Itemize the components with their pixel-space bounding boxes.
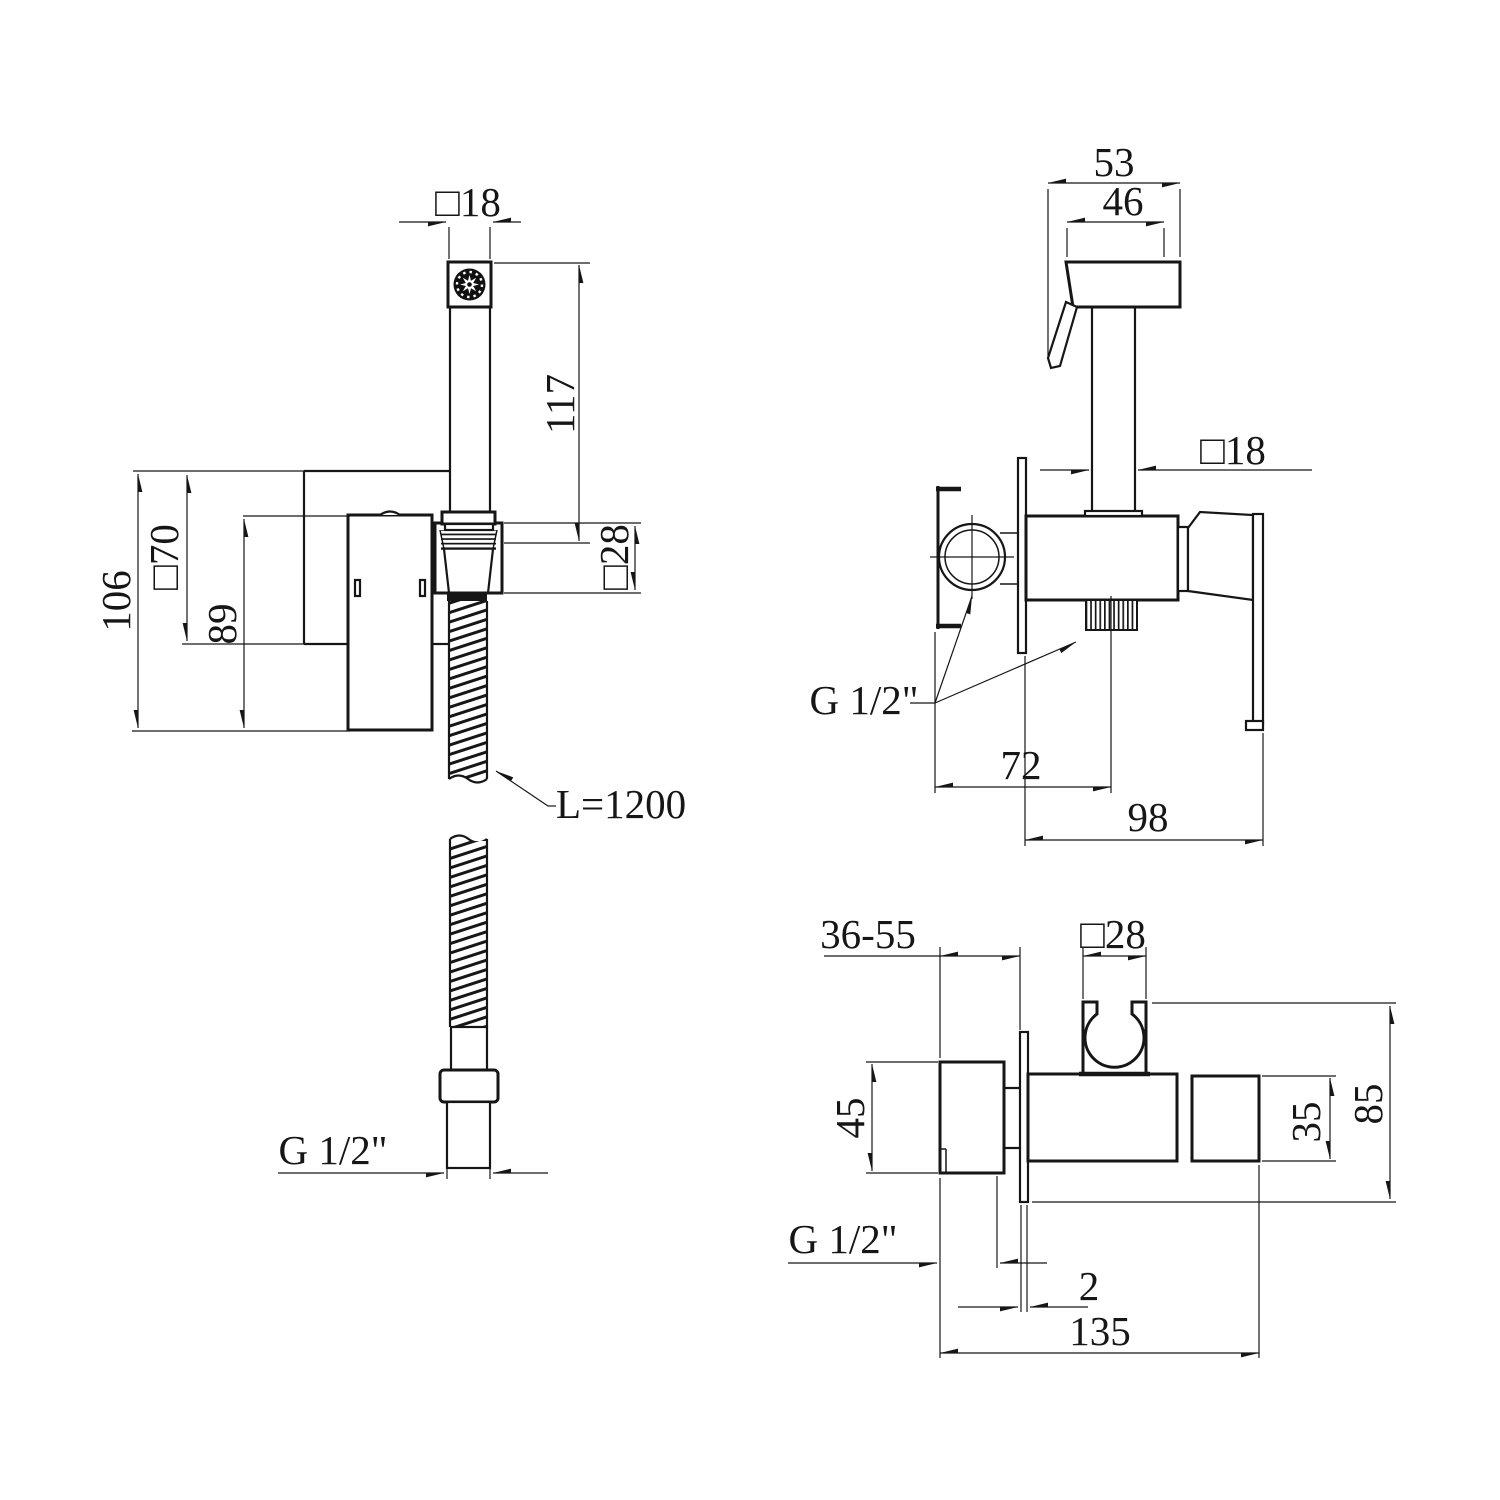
front-dim-28-label: □28 — [591, 524, 637, 590]
top-mixer-body — [1028, 1074, 1177, 1161]
side-handle-wedge — [1188, 512, 1253, 600]
side-handle-neck — [1178, 527, 1188, 591]
top-view: 36-55 □28 45 35 85 G 1/2" 2 135 — [788, 911, 1396, 1358]
side-view: 53 46 □18 G 1/2" 72 98 — [810, 139, 1313, 846]
front-hose-end-nut — [440, 1070, 498, 1102]
side-thread-leader-inlet — [935, 596, 972, 703]
top-dim-2-label: 2 — [1079, 1263, 1100, 1309]
front-hose-length-label: L=1200 — [556, 781, 686, 827]
top-thread-label: G 1/2" — [789, 1216, 898, 1262]
side-mixer-body — [1026, 516, 1178, 600]
side-dim-98-label: 98 — [1128, 794, 1169, 840]
side-dim-46-label: 46 — [1103, 178, 1144, 224]
top-dim-range-label: 36-55 — [820, 911, 916, 957]
front-body-top-bump — [380, 512, 400, 516]
side-spray-head — [1066, 262, 1180, 307]
front-dim-89-label: 89 — [199, 604, 245, 645]
side-thread-label: G 1/2" — [810, 677, 919, 723]
front-mixer-body — [348, 515, 432, 730]
top-dim-28-label: □28 — [1080, 911, 1146, 957]
side-shaft-base-flange — [1085, 511, 1142, 516]
top-dim-45-label: 45 — [827, 1098, 873, 1139]
front-spray-nut — [442, 512, 495, 524]
side-thread-leader-outlet — [935, 642, 1076, 703]
top-holder-clip — [1083, 1002, 1146, 1074]
front-body-slot-left — [355, 580, 360, 596]
front-hose-length-leader — [496, 771, 548, 806]
front-dim-106-label: 106 — [93, 570, 139, 632]
front-spray-center-dot — [467, 282, 472, 287]
side-handle-grip-end — [1246, 721, 1263, 730]
front-body-slot-right — [420, 580, 425, 596]
top-inwall-body — [940, 1062, 1004, 1173]
front-dim-18-label: □18 — [435, 179, 501, 225]
bidet-faucet-dimension-drawing: □18 117 106 □70 89 □28 L=1200 G 1/2" — [0, 0, 1500, 1500]
front-hose-thread-tube — [447, 1102, 490, 1168]
side-dim-18-label: □18 — [1200, 427, 1266, 473]
front-hose-end-fitting — [451, 1027, 487, 1070]
top-handle — [1192, 1076, 1259, 1161]
technical-drawing-page: □18 117 106 □70 89 □28 L=1200 G 1/2" — [0, 0, 1500, 1500]
front-dim-117-label: 117 — [537, 374, 583, 434]
top-dim-85-label: 85 — [1345, 1084, 1391, 1125]
front-dim-70-label: □70 — [141, 524, 187, 590]
front-hose-upper-hatch — [449, 601, 487, 779]
front-hose-lower-hatch — [450, 841, 487, 1027]
front-view: □18 117 106 □70 89 □28 L=1200 G 1/2" — [93, 179, 686, 1179]
front-thread-label: G 1/2" — [279, 1127, 388, 1173]
top-dim-35-label: 35 — [1283, 1102, 1329, 1143]
side-dim-72-label: 72 — [1001, 742, 1042, 788]
front-hose-neck — [447, 593, 487, 601]
side-handle-grip — [1253, 514, 1263, 724]
front-spray-collar — [445, 524, 493, 530]
front-connector-thread-hatch — [441, 530, 496, 549]
top-dim-135-label: 135 — [1069, 1308, 1131, 1354]
side-spray-trigger — [1048, 302, 1077, 368]
